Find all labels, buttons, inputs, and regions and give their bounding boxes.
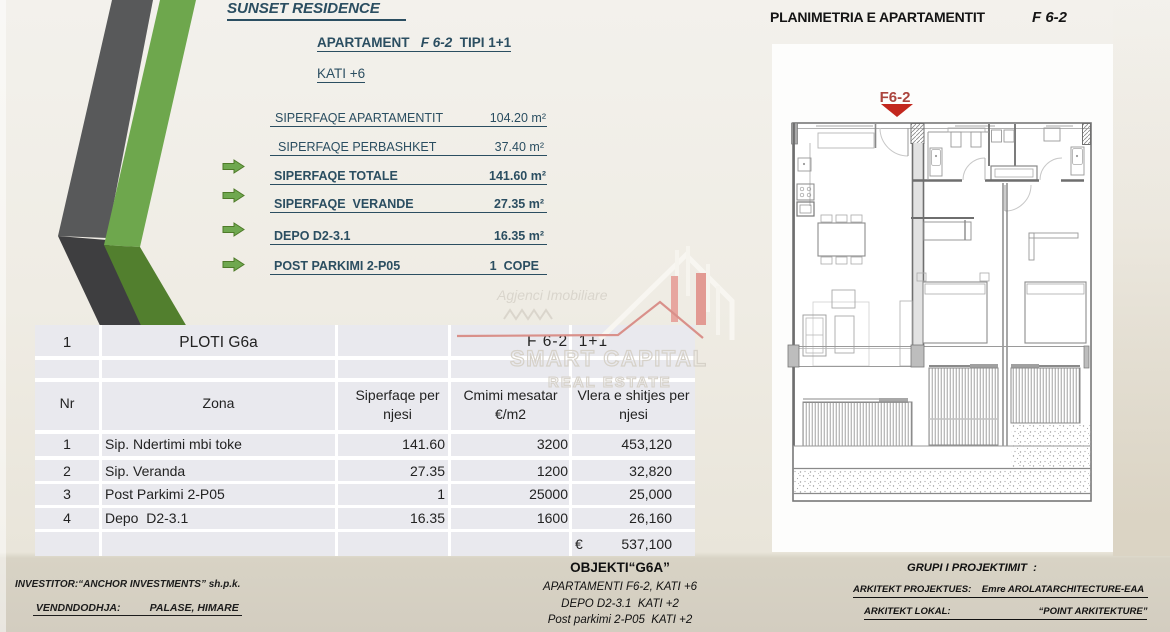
svg-text:Agjenci Imobiliare: Agjenci Imobiliare <box>496 287 608 303</box>
svg-text:F6-2: F6-2 <box>880 89 911 106</box>
